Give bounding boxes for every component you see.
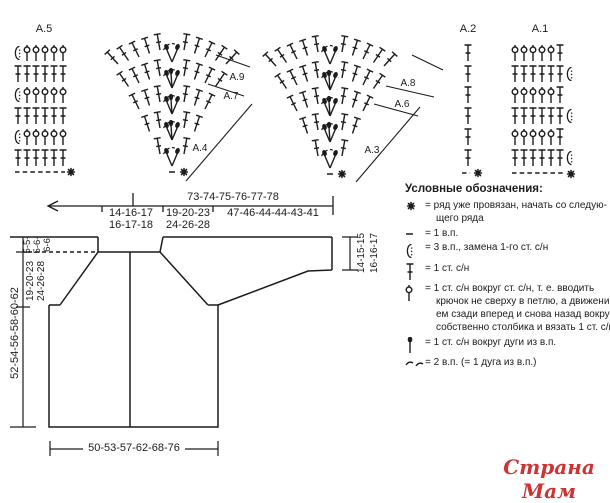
dim-cuff-line2: 16-16-17 [369,226,381,280]
legend-item-text: = 3 в.п., замена 1-го ст. с/н [425,242,548,255]
relief_dc-icon [405,283,425,302]
dim-seg1-line1: 14-16-17 [101,207,161,219]
dim-total-width: 73-74-75-76-77-78 [166,191,300,203]
legend-item-text: = 1 в.п. [425,228,458,241]
legend-item-text: = 1 ст. с/н вокруг дуги из в.п. [425,337,556,350]
dim-bottom-width: 50-53-57-62-68-76 [74,442,194,454]
legend-item: = 1 ст. с/н [405,263,607,281]
watermark: Страна Мам [494,455,604,503]
legend: Условные обозначения: = ряд уже провязан… [405,183,607,371]
chart-a8-label: А.8 [396,78,420,90]
chart-a9-label: А.9 [225,72,249,84]
chart-a6-label: А.6 [390,99,414,111]
chart-a2-label: А.2 [448,23,488,35]
legend-item: = 3 в.п., замена 1-го ст. с/н [405,242,607,261]
dim-seg2-line2: 24-26-28 [158,219,218,231]
legend-item-text: = 1 ст. с/н вокруг ст. с/н, т. е. вводит… [425,283,610,334]
chart-fan-left [105,34,240,176]
legend-item: = ряд уже провязан, начать со следую-щег… [405,200,607,226]
chart-a1 [512,45,575,177]
chart-a2 [462,45,481,176]
chain3-icon [405,242,425,261]
legend-item-text: = 2 в.п. (= 1 дуга из в.п.) [425,357,536,370]
dim-seg2-line1: 19-20-23 [158,207,218,219]
chart-a4-label: А.4 [188,143,212,155]
legend-item: = 1 в.п. [405,228,607,241]
legend-item: = 1 ст. с/н вокруг ст. с/н, т. е. вводит… [405,283,607,334]
dim-cuff-line1: 14-15-15 [356,226,368,280]
legend-item: = 1 ст. с/н вокруг дуги из в.п. [405,337,607,355]
legend-title: Условные обозначения: [405,183,607,195]
dim-body-height: 52-54-56-58-60-62 [9,278,21,388]
dim-seg3: 47-46-44-44-43-41 [213,207,333,219]
dim-neck-line3: 6-6 [42,231,54,259]
garment-outline [10,237,332,427]
dc_around_arc-icon [405,337,425,355]
chart-a7-label: А.7 [219,91,243,103]
legend-item: = 2 в.п. (= 1 дуга из в.п.) [405,357,607,370]
chart-a1-label: А.1 [520,23,560,35]
legend-item-text: = 1 ст. с/н [425,263,469,276]
chart-a5 [15,45,75,175]
chain1-icon [405,228,425,240]
legend-item-text: = ряд уже провязан, начать со следую-щег… [425,200,607,226]
chart-a3-label: А.3 [360,145,384,157]
chart-a5-label: А.5 [24,23,64,35]
star-icon [405,200,425,213]
dim-yoke-line2: 24-26-28 [36,257,48,305]
dim-seg1-line2: 16-17-18 [101,219,161,231]
dc-icon [405,263,425,281]
arc2-icon [405,357,425,369]
schematic-dimension-brackets [10,237,358,456]
